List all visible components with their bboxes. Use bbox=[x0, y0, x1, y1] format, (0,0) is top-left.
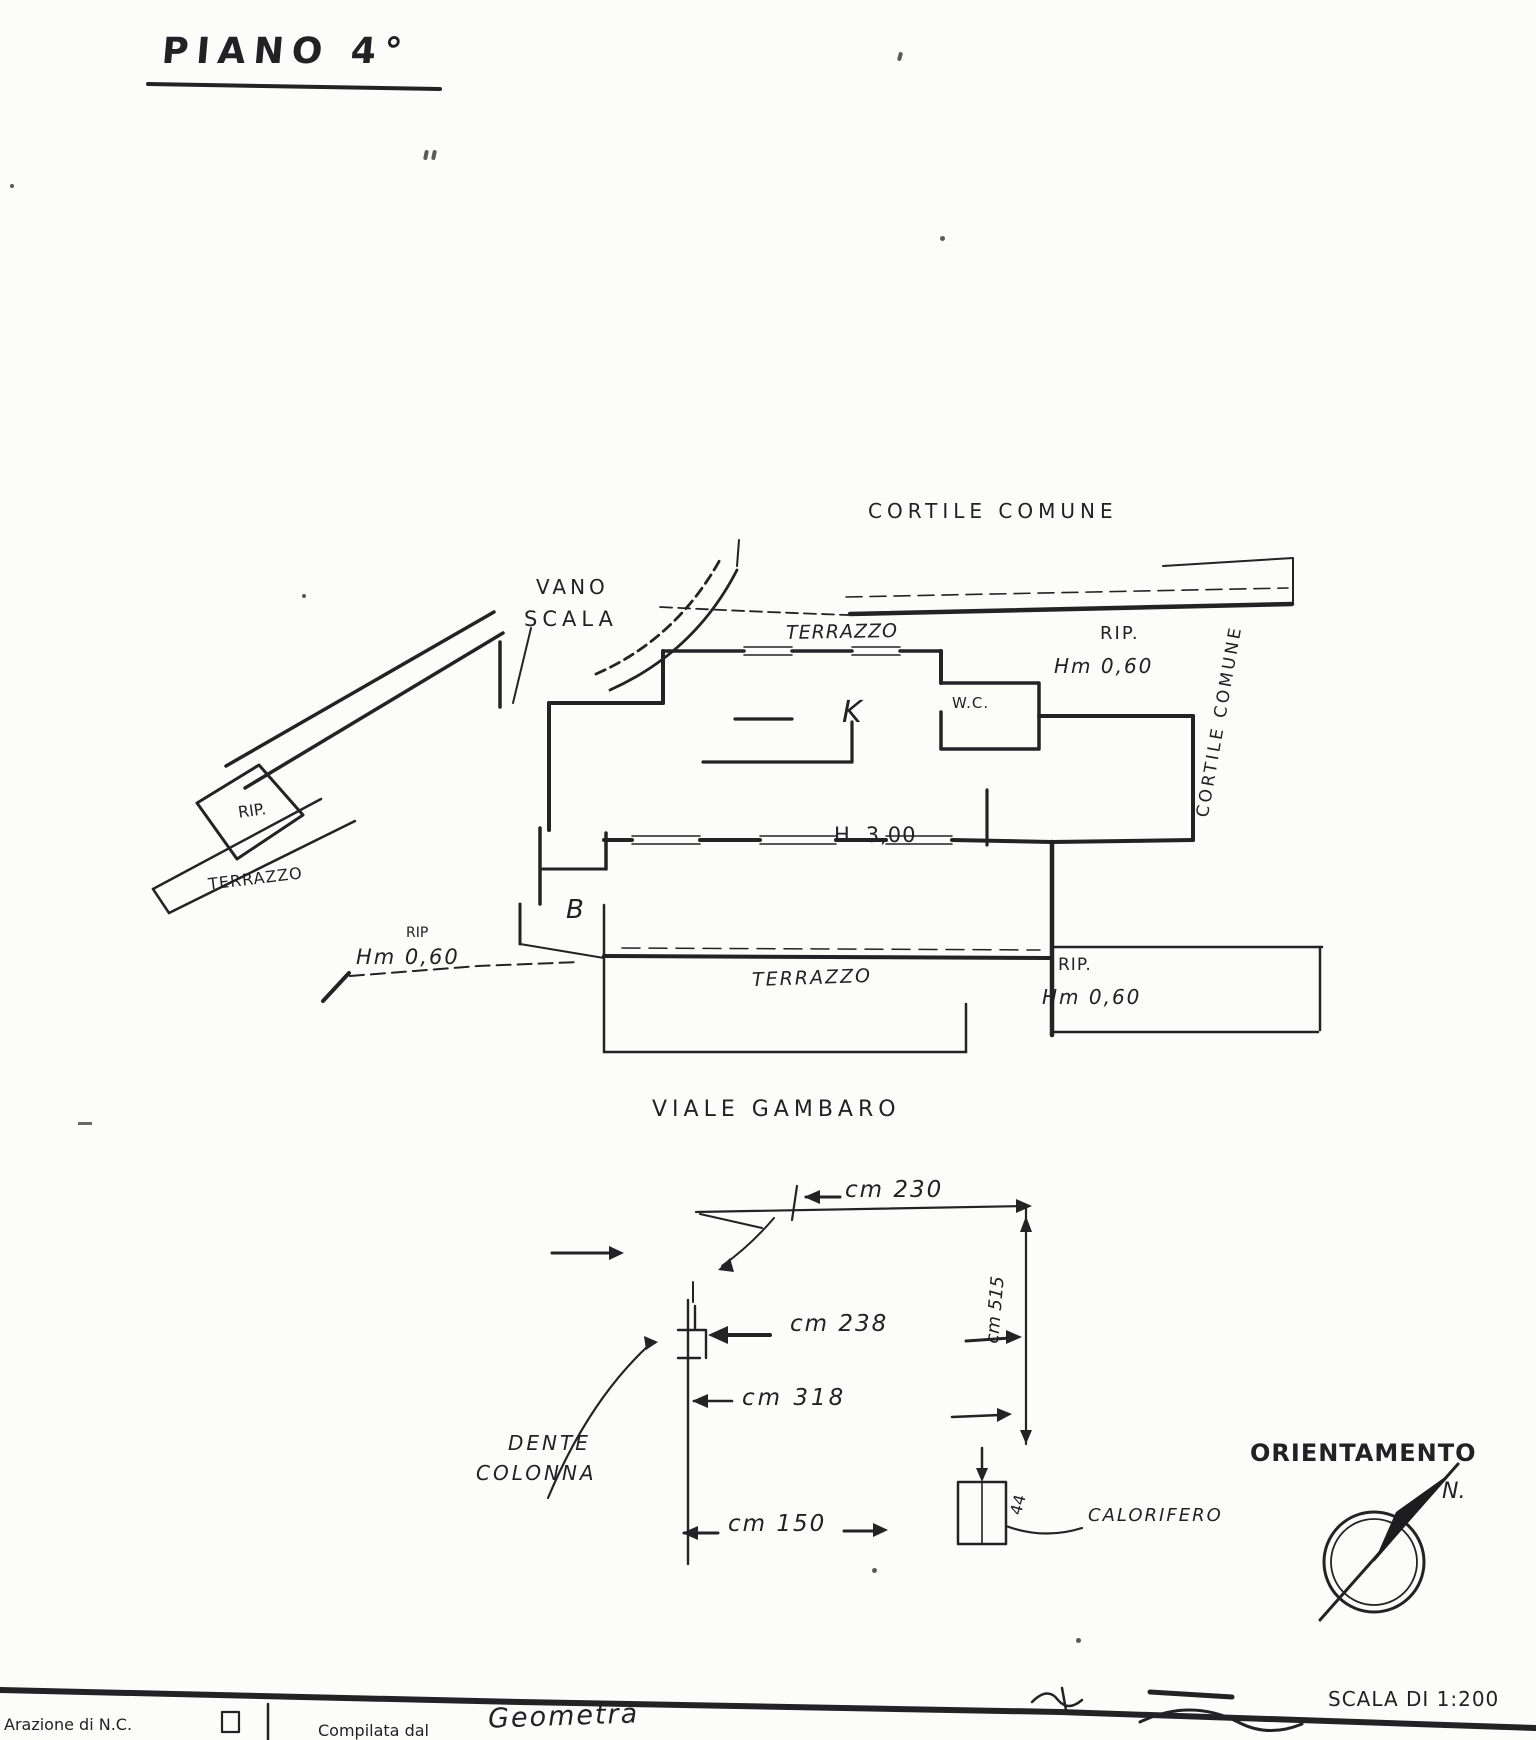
dimension-bottom-label: cm 150 bbox=[728, 1512, 826, 1537]
column-callout-line1: DENTE bbox=[508, 1432, 591, 1454]
parapet-height-left: Hm 0,60 bbox=[356, 946, 460, 969]
top-terrace-walls bbox=[660, 558, 1293, 615]
terrace-label-top: TERRAZZO bbox=[786, 621, 898, 644]
bath-label: B bbox=[566, 896, 584, 925]
form-strip-lines bbox=[0, 1688, 1536, 1740]
terrace-label-bottom: TERRAZZO bbox=[752, 966, 873, 991]
dimension-detail bbox=[548, 1186, 1082, 1564]
scanned-floor-plan-page: PIANO 4° CORTILE COMUNE CORTILE COMUNE V… bbox=[0, 0, 1536, 1740]
form-value-surveyor: Geometra bbox=[488, 1699, 640, 1734]
title-underline bbox=[148, 84, 440, 89]
storage-label-mid: RIP bbox=[406, 926, 428, 941]
form-field-compiled-by: Compilata dal bbox=[318, 1722, 429, 1740]
compass-rose bbox=[1320, 1464, 1458, 1620]
scan-speck bbox=[78, 1122, 92, 1125]
dimension-arrowheads bbox=[609, 1190, 1032, 1540]
page-title: PIANO 4° bbox=[160, 32, 411, 72]
bath-room-walls bbox=[520, 828, 606, 958]
scan-speck bbox=[1076, 1638, 1081, 1643]
storage-label-left: RIP. bbox=[237, 800, 267, 821]
stairwell-label-line1: VANO bbox=[536, 576, 609, 598]
dimension-mid-label: cm 318 bbox=[742, 1386, 846, 1411]
plan-linework bbox=[0, 0, 1536, 1740]
courtyard-label-top: CORTILE COMUNE bbox=[868, 500, 1118, 522]
form-field-declaration: Arazione di N.C. bbox=[4, 1716, 132, 1734]
column-callout-line2: COLONNA bbox=[476, 1462, 597, 1484]
storage-label-top-right: RIP. bbox=[1100, 624, 1140, 644]
storage-label-bottom-right: RIP. bbox=[1058, 956, 1092, 975]
wc-label: W.C. bbox=[952, 695, 989, 712]
scan-speck bbox=[940, 236, 945, 241]
ceiling-height-label: H. 3,00 bbox=[834, 824, 917, 847]
scan-speck bbox=[302, 594, 306, 598]
north-label: N. bbox=[1442, 1480, 1465, 1504]
dimension-top-label: cm 230 bbox=[845, 1178, 943, 1203]
street-label: VIALE GAMBARO bbox=[652, 1098, 901, 1122]
parapet-height-bottom-right: Hm 0,60 bbox=[1042, 986, 1141, 1008]
bottom-terrace-walls bbox=[604, 842, 1322, 1052]
dimension-column-label: cm 238 bbox=[790, 1312, 888, 1337]
kitchen-label: K bbox=[842, 696, 862, 729]
orientation-title: ORIENTAMENTO bbox=[1250, 1440, 1477, 1466]
scale-note: SCALA DI 1:200 bbox=[1328, 1688, 1499, 1710]
stairwell-label-line2: SCALA bbox=[524, 608, 618, 631]
scan-speck bbox=[872, 1568, 877, 1573]
radiator-callout-label: CALORIFERO bbox=[1088, 1506, 1223, 1526]
left-wing-walls bbox=[153, 612, 580, 1001]
parapet-height-top-right: Hm 0,60 bbox=[1054, 655, 1153, 677]
scan-speck bbox=[10, 184, 14, 188]
